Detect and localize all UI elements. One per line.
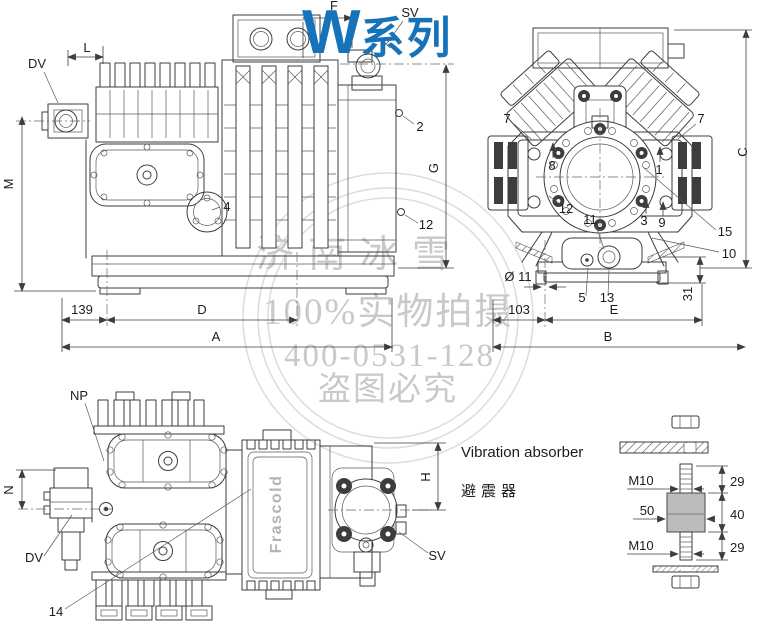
dim-d: D	[197, 302, 206, 317]
label-dv-bottom: DV	[25, 550, 43, 565]
page: 济南冰雪 100%实物拍摄 400-0531-128 盗图必究 W系列 Vibr…	[0, 0, 760, 629]
bottom-view-drawing: Frascold	[1, 388, 446, 620]
connector-plate	[226, 450, 242, 574]
motor-housing	[338, 85, 405, 252]
dim-b: B	[604, 329, 613, 344]
front-view-drawing: C 31 Ø 11 103 E B 7	[488, 28, 752, 352]
label-dv: DV	[28, 56, 46, 71]
label-11: 11	[583, 212, 597, 227]
label-7-right: 7	[697, 111, 704, 126]
dim-40: 40	[730, 507, 744, 522]
upper-valve-cover	[107, 432, 227, 490]
threaded-stud-bottom	[680, 532, 692, 560]
vibration-absorber-title-zh: 避震器	[461, 480, 521, 501]
washer-plate-bottom	[653, 566, 718, 572]
cylinder-head-fins	[96, 63, 218, 142]
label-10: 10	[722, 246, 736, 261]
dim-50: 50	[640, 503, 654, 518]
lower-valve-cover	[105, 522, 223, 580]
vibration-absorber-drawing: 29 40 29 M10 50 M10	[620, 416, 744, 588]
label-7-left: 7	[503, 111, 510, 126]
pump-end	[320, 446, 406, 586]
label-12-side: 12	[419, 217, 433, 232]
label-2: 2	[416, 119, 423, 134]
page-title: W系列	[302, 2, 453, 64]
brand-logo: Frascold	[268, 475, 285, 554]
hex-nut-bottom	[672, 576, 699, 588]
hex-nut-top	[672, 416, 699, 428]
threaded-stud-top	[680, 464, 692, 493]
label-8: 8	[548, 158, 555, 173]
bottom-head-fins	[92, 572, 226, 620]
dim-n: N	[1, 485, 16, 494]
label-np: NP	[70, 388, 88, 403]
label-3: 3	[640, 213, 647, 228]
base-sump	[92, 256, 394, 294]
series-letter: W	[302, 0, 361, 67]
label-14: 14	[49, 604, 63, 619]
mounting-plate-top	[620, 442, 708, 453]
dim-139: 139	[71, 302, 93, 317]
dim-m: M	[1, 179, 16, 190]
dim-29-top: 29	[730, 474, 744, 489]
cover-plate	[90, 144, 204, 206]
dim-a: A	[212, 329, 221, 344]
motor-box: Frascold	[242, 430, 320, 599]
top-head-fins	[94, 392, 224, 434]
dim-29-bottom: 29	[730, 540, 744, 555]
waist-section	[92, 488, 113, 522]
dim-dia11: Ø 11	[504, 269, 531, 284]
label-sv-bottom: SV	[428, 548, 446, 563]
label-15: 15	[718, 224, 732, 239]
oil-sight-glass	[187, 192, 227, 232]
dim-103: 103	[508, 302, 530, 317]
series-word: 系列	[361, 14, 453, 63]
dim-g: G	[426, 163, 441, 173]
dim-m10-bottom: M10	[628, 538, 653, 553]
dim-l: L	[83, 40, 90, 55]
cylinder-bank	[222, 60, 338, 256]
dim-m10-top: M10	[628, 473, 653, 488]
dim-31: 31	[680, 287, 695, 301]
np-dv-assembly	[44, 468, 92, 570]
label-12-front: 12	[559, 201, 573, 216]
label-5: 5	[578, 290, 585, 305]
bolt-12	[398, 209, 405, 216]
bolt-2	[396, 110, 403, 117]
label-4: 4	[223, 199, 230, 214]
rubber-block	[667, 493, 705, 532]
label-13: 13	[600, 290, 614, 305]
dim-c: C	[735, 147, 750, 156]
label-1: 1	[655, 162, 662, 177]
vibration-absorber-title-en: Vibration absorber	[461, 444, 583, 461]
label-9: 9	[658, 215, 665, 230]
dim-h: H	[418, 472, 433, 481]
